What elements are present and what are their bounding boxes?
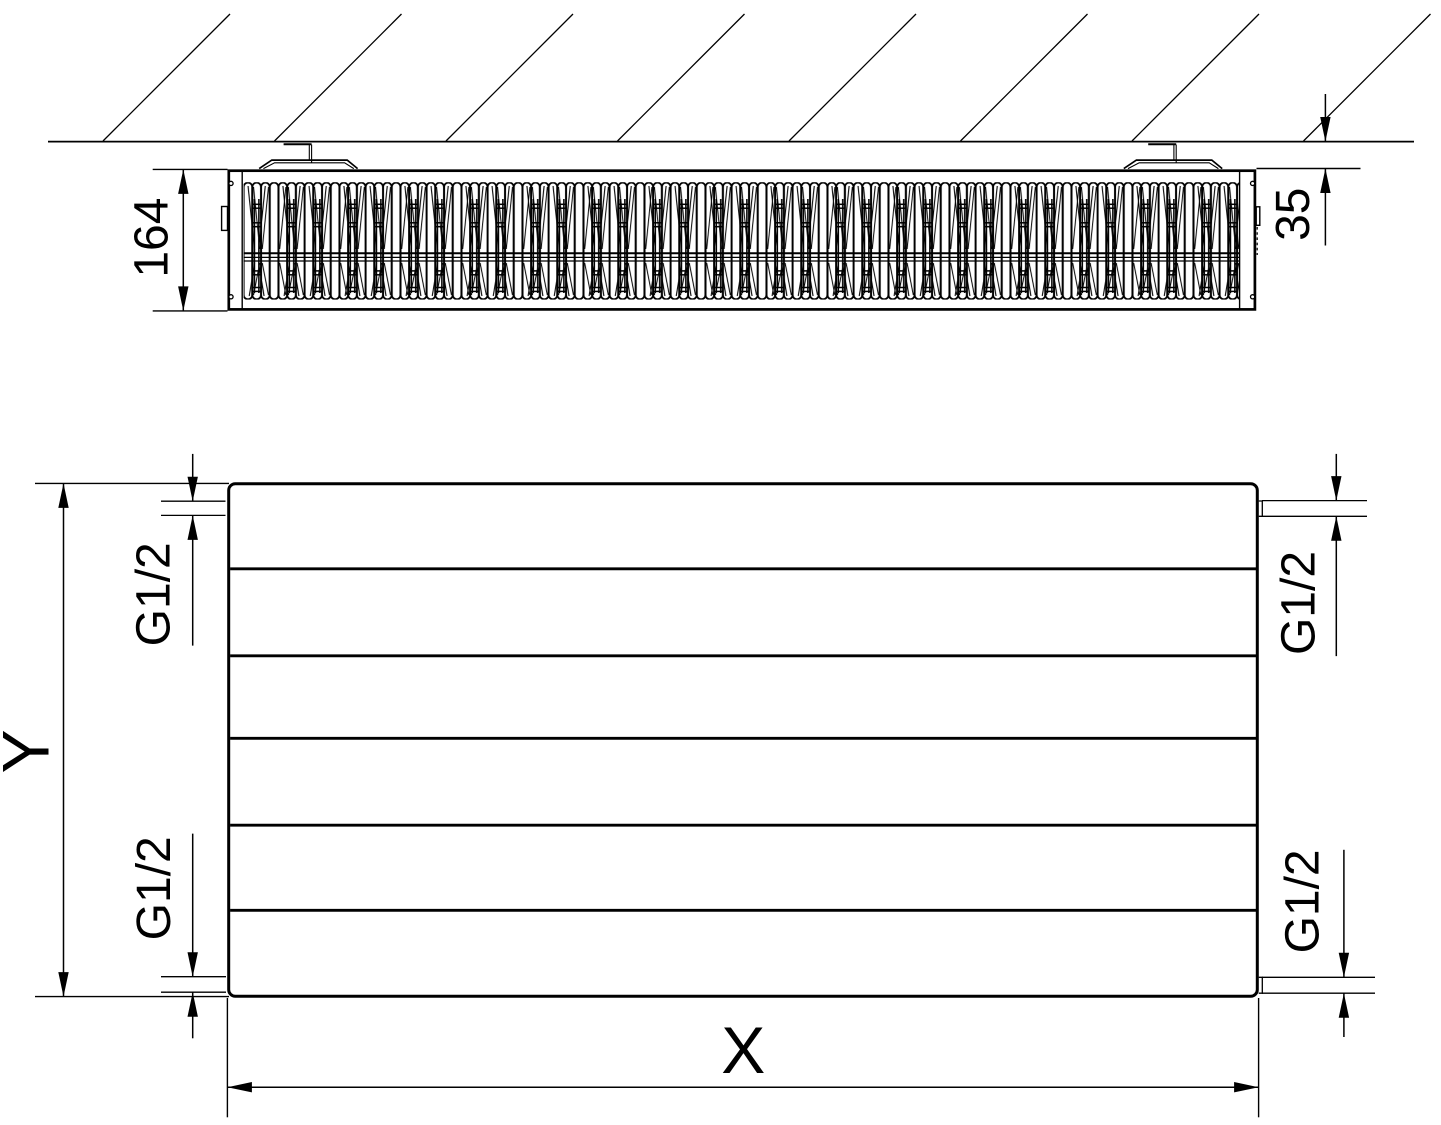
svg-text:G1/2: G1/2 bbox=[128, 542, 181, 646]
svg-text:Y: Y bbox=[0, 729, 63, 773]
svg-text:35: 35 bbox=[1267, 188, 1320, 241]
svg-text:G1/2: G1/2 bbox=[1277, 849, 1330, 953]
svg-text:G1/2: G1/2 bbox=[128, 836, 181, 940]
svg-text:X: X bbox=[721, 1013, 765, 1087]
svg-text:G1/2: G1/2 bbox=[1273, 551, 1326, 655]
svg-text:164: 164 bbox=[126, 198, 179, 278]
